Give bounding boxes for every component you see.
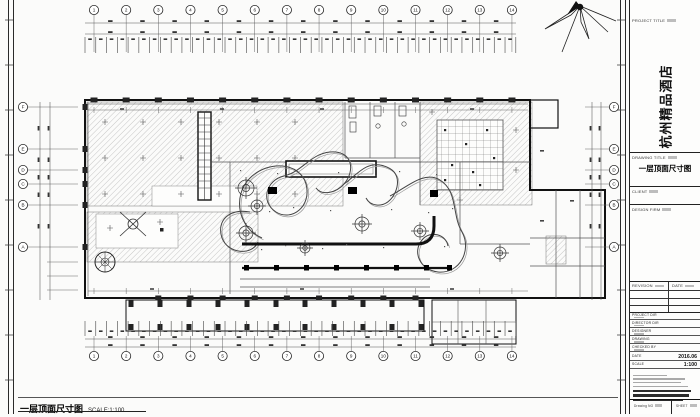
svg-text:2: 2 (125, 8, 128, 13)
svg-text:12: 12 (445, 354, 451, 359)
copyright-note (630, 372, 700, 401)
project-title-label: PROJECT TITLE (630, 16, 676, 23)
drawing-title-value: 一层顶面尺寸图 (630, 163, 700, 174)
revision-table: REVISION DATE (630, 281, 700, 313)
revision-date-header: DATE (670, 282, 694, 288)
svg-text:7: 7 (286, 354, 289, 359)
grid-bubble: E (609, 144, 618, 153)
grid-bubble: 5 (218, 351, 227, 360)
grid-bubble: 3 (154, 351, 163, 360)
svg-text:1: 1 (93, 8, 96, 13)
svg-text:6: 6 (253, 8, 256, 13)
client-label: CLIENT (630, 187, 700, 194)
grid-bubble: C (609, 179, 618, 188)
signature-row: PROJECT DIR (630, 312, 700, 320)
grid-bubble: 4 (186, 5, 195, 14)
drawing-no-label: Drawing NO (632, 402, 671, 408)
title-block: PROJECT TITLE 杭州精品酒店 DRAWING TITLE 一层顶面尺… (629, 0, 700, 414)
grid-bubble: 7 (282, 351, 291, 360)
grid-bubble: 13 (475, 5, 484, 14)
grid-bubble: 14 (507, 5, 516, 14)
svg-text:5: 5 (221, 354, 224, 359)
grid-bubble: 1 (89, 5, 98, 14)
signature-row: DRAWING (630, 336, 700, 344)
project-name-vertical: 杭州精品酒店 (630, 58, 700, 154)
grid-bubble: 11 (411, 5, 420, 14)
svg-text:4: 4 (189, 354, 192, 359)
grid-bubble: 4 (186, 351, 195, 360)
svg-text:6: 6 (253, 354, 256, 359)
svg-text:8: 8 (318, 354, 321, 359)
grid-bubble: 13 (475, 351, 484, 360)
grid-bubble: 8 (314, 5, 323, 14)
grid-bubble: 5 (218, 5, 227, 14)
svg-text:11: 11 (413, 8, 418, 13)
grid-bubble: A (18, 242, 27, 251)
drawing-title-label: DRAWING TITLE (630, 153, 700, 160)
svg-text:10: 10 (381, 8, 387, 13)
signature-row: DESIGNER (630, 328, 700, 336)
grid-bubble: 9 (347, 351, 356, 360)
svg-text:F: F (613, 105, 616, 110)
svg-text:14: 14 (509, 354, 515, 359)
svg-text:2: 2 (125, 354, 128, 359)
date-value: 2016.06 (678, 354, 697, 360)
svg-text:8: 8 (318, 8, 321, 13)
lattice-ceiling (437, 120, 503, 190)
grid-bubble: D (18, 165, 27, 174)
svg-text:14: 14 (509, 8, 515, 13)
caption-underline (18, 411, 146, 412)
signature-row: CHECKED BY (630, 344, 700, 352)
grid-bubble: 14 (507, 351, 516, 360)
grid-bubble: 9 (347, 5, 356, 14)
svg-text:11: 11 (413, 354, 418, 359)
svg-text:1: 1 (93, 354, 96, 359)
scale-value: 1:100 (684, 362, 697, 368)
svg-text:B: B (612, 203, 615, 208)
grid-bubble: 10 (379, 351, 388, 360)
svg-text:9: 9 (350, 354, 353, 359)
svg-text:5: 5 (221, 8, 224, 13)
colonnade-columns (129, 300, 424, 330)
svg-text:10: 10 (381, 354, 387, 359)
grid-bubble: C (18, 179, 27, 188)
svg-text:4: 4 (189, 8, 192, 13)
svg-text:F: F (22, 105, 25, 110)
grid-bubble: 12 (443, 5, 452, 14)
grid-bubble: F (609, 102, 618, 111)
grid-bubble: 1 (89, 351, 98, 360)
grid-bubble: 8 (314, 351, 323, 360)
svg-text:B: B (21, 203, 24, 208)
grid-bubble: 2 (122, 351, 131, 360)
grid-bubble: 2 (122, 5, 131, 14)
svg-text:3: 3 (157, 8, 160, 13)
north-star-logo-icon (545, 1, 616, 52)
grid-bubble: 6 (250, 5, 259, 14)
caption-rule (18, 397, 618, 398)
svg-text:13: 13 (477, 8, 483, 13)
svg-text:13: 13 (477, 354, 483, 359)
signature-row: DIRECTOR DIR (630, 320, 700, 328)
grid-bubble: B (18, 200, 27, 209)
grid-bubble: 7 (282, 5, 291, 14)
sheet-caption: 一层顶面尺寸图SCALE:1:100 (20, 399, 124, 417)
grid-bubble: A (609, 242, 618, 251)
grid-bubble: 11 (411, 351, 420, 360)
grid-bubble: 6 (250, 351, 259, 360)
grid-bubble: 12 (443, 351, 452, 360)
svg-text:3: 3 (157, 354, 160, 359)
signature-rows: PROJECT DIRDIRECTOR DIRDESIGNERDRAWINGCH… (630, 312, 700, 352)
floor-plan-canvas: 11223344556677889910101111121213131414FF… (0, 0, 700, 414)
svg-text:12: 12 (445, 8, 451, 13)
grid-bubble: E (18, 144, 27, 153)
grid-bubble: B (609, 200, 618, 209)
svg-text:E: E (612, 147, 615, 152)
grid-bubble: 3 (154, 5, 163, 14)
svg-text:E: E (21, 147, 24, 152)
stair-slot (198, 112, 211, 200)
caption-title: 一层顶面尺寸图 (20, 404, 83, 414)
spiral-stair (95, 252, 115, 272)
drawing-number-row: Drawing NO SHEET (630, 399, 700, 414)
grid-bubble: 10 (379, 5, 388, 14)
date-row: DATE 2016.06 (630, 353, 700, 361)
svg-text:9: 9 (350, 8, 353, 13)
grid-bubble: F (18, 102, 27, 111)
design-firm-label: DESIGN FIRM (630, 205, 700, 212)
grid-bubble: D (609, 165, 618, 174)
scale-row: SCALE 1:100 (630, 361, 700, 369)
svg-text:7: 7 (286, 8, 289, 13)
sheet-label: SHEET (674, 402, 700, 408)
